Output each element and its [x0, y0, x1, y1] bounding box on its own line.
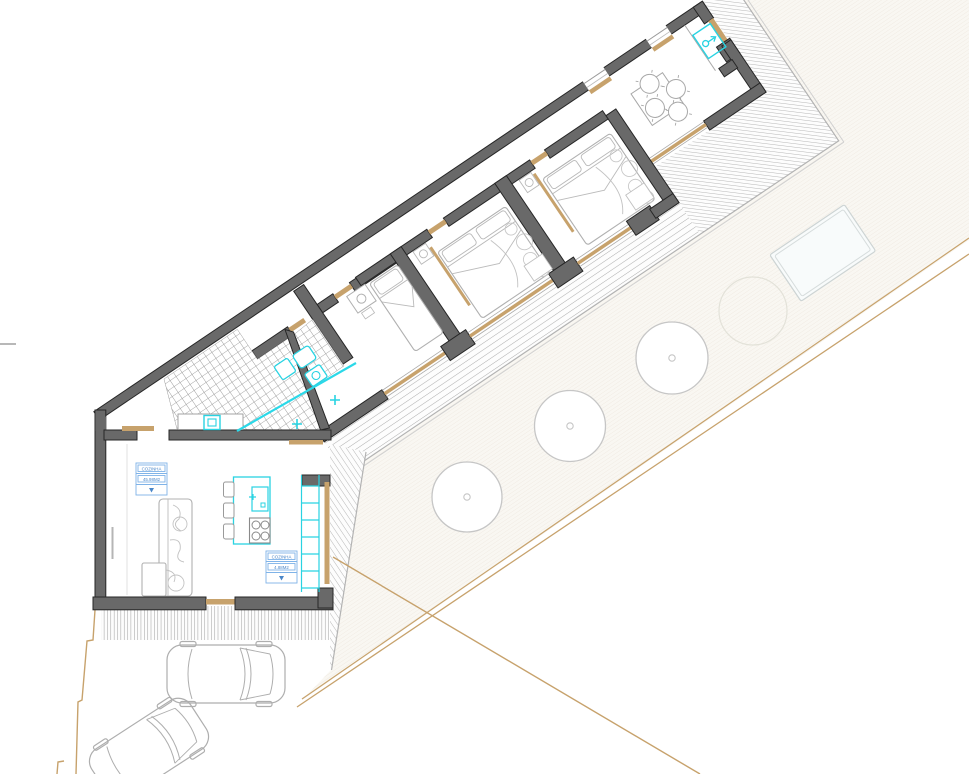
svg-text:COZINHA: COZINHA: [272, 555, 292, 560]
svg-text:45.98M2: 45.98M2: [143, 477, 161, 482]
svg-text:4.88M2: 4.88M2: [274, 565, 289, 570]
svg-text:COZINHA: COZINHA: [142, 467, 162, 472]
